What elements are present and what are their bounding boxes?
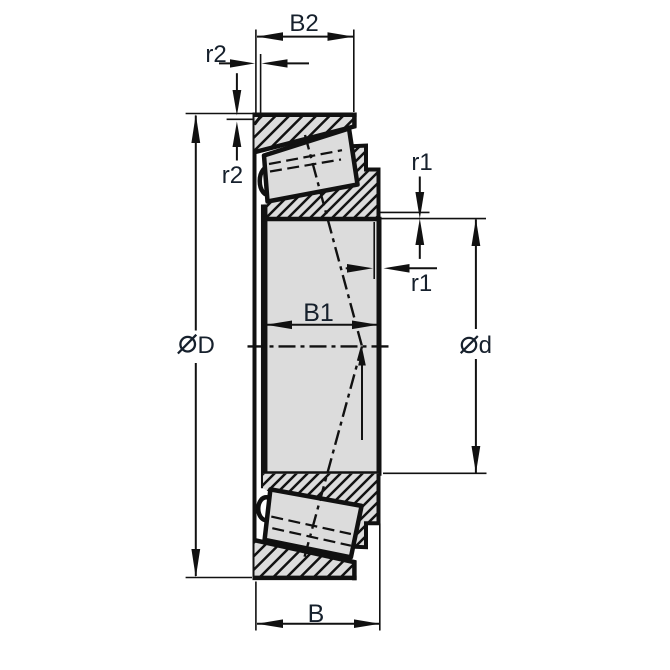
svg-text:B2: B2 [289,10,318,37]
svg-text:B1: B1 [303,299,334,327]
svg-text:r2: r2 [222,162,243,189]
svg-text:d: d [479,332,492,359]
svg-text:r1: r1 [411,270,432,297]
svg-text:r1: r1 [411,149,432,176]
svg-text:D: D [198,332,215,359]
